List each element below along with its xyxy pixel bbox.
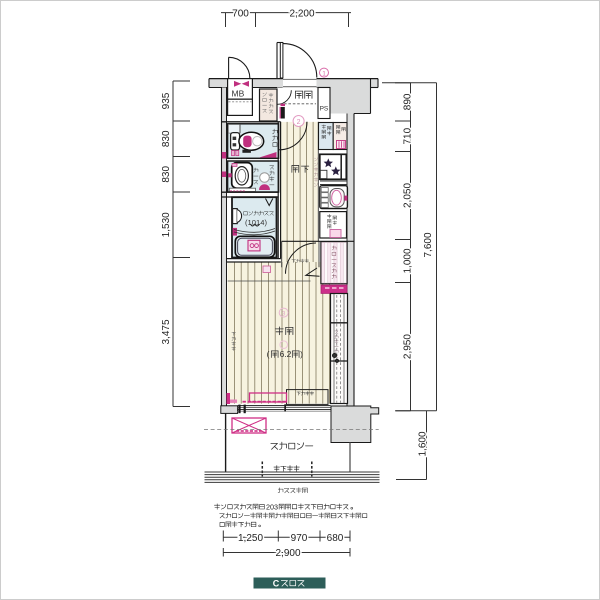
svg-text:830: 830 [161, 130, 172, 147]
svg-text:970: 970 [291, 533, 308, 544]
svg-text:680: 680 [327, 533, 344, 544]
svg-text:): ) [300, 349, 303, 359]
svg-text:2,200: 2,200 [289, 9, 314, 20]
svg-text:935: 935 [161, 92, 172, 109]
svg-text:710: 710 [403, 127, 414, 144]
svg-text:1,250: 1,250 [238, 533, 263, 544]
svg-text:6.2: 6.2 [280, 349, 292, 359]
svg-text:3,475: 3,475 [161, 319, 172, 344]
svg-text:7,600: 7,600 [423, 232, 434, 257]
svg-text:1,000: 1,000 [403, 248, 414, 273]
svg-text:890: 890 [403, 93, 414, 110]
svg-text:C: C [273, 578, 280, 588]
svg-text:(: ( [267, 349, 270, 359]
svg-text:PS: PS [320, 106, 329, 113]
svg-text:MB: MB [232, 89, 245, 99]
svg-text:700: 700 [232, 9, 249, 20]
svg-text:203: 203 [266, 503, 278, 512]
svg-text:2,050: 2,050 [403, 183, 414, 208]
svg-text:1: 1 [322, 70, 326, 77]
svg-text:1,600: 1,600 [418, 431, 429, 456]
svg-text:1,530: 1,530 [161, 212, 172, 237]
svg-text:2,950: 2,950 [403, 334, 414, 359]
svg-text:2: 2 [297, 119, 301, 126]
svg-text:830: 830 [161, 166, 172, 183]
svg-text:2,900: 2,900 [275, 548, 300, 559]
